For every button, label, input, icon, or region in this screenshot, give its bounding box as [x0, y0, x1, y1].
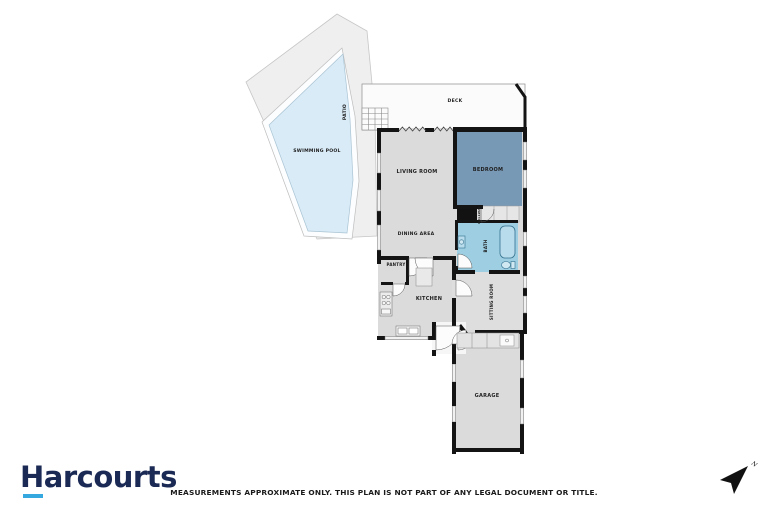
bath-label: BATH: [483, 240, 488, 253]
kitchen-bench: [416, 268, 432, 286]
toilet: [502, 262, 516, 269]
deck-area: [362, 84, 525, 130]
swimming-pool-label: SWIMMING POOL: [293, 148, 341, 154]
bath-sink: [458, 236, 465, 248]
laundry-bench: [457, 333, 519, 348]
window: [378, 153, 381, 250]
north-label: N: [749, 459, 759, 469]
sitting-room-label: SITTING ROOM: [489, 284, 494, 320]
disclaimer-text: MEASUREMENTS APPROXIMATE ONLY. THIS PLAN…: [0, 488, 768, 497]
dining-area-label: DINING AREA: [398, 231, 435, 237]
kitchen-label: KITCHEN: [416, 296, 442, 302]
stove: [380, 292, 392, 316]
deck-label: DECK: [448, 98, 463, 104]
living-room-label: LIVING ROOM: [397, 169, 438, 175]
pantry-label: PANTRY: [387, 262, 406, 267]
garage-label: GARAGE: [475, 393, 500, 399]
deck-stairs: [362, 108, 388, 130]
hallway-label: HALLWAY: [477, 206, 481, 224]
bathtub: [500, 226, 515, 258]
closet: [481, 206, 519, 222]
patio-area: [246, 14, 377, 239]
floor-plan: SWIMMING POOL PATIO DECK LIVING ROOM BED…: [0, 0, 768, 512]
bedroom-label: BEDROOM: [473, 167, 503, 173]
patio-label: PATIO: [342, 104, 348, 120]
kitchen-sink: [396, 326, 420, 336]
